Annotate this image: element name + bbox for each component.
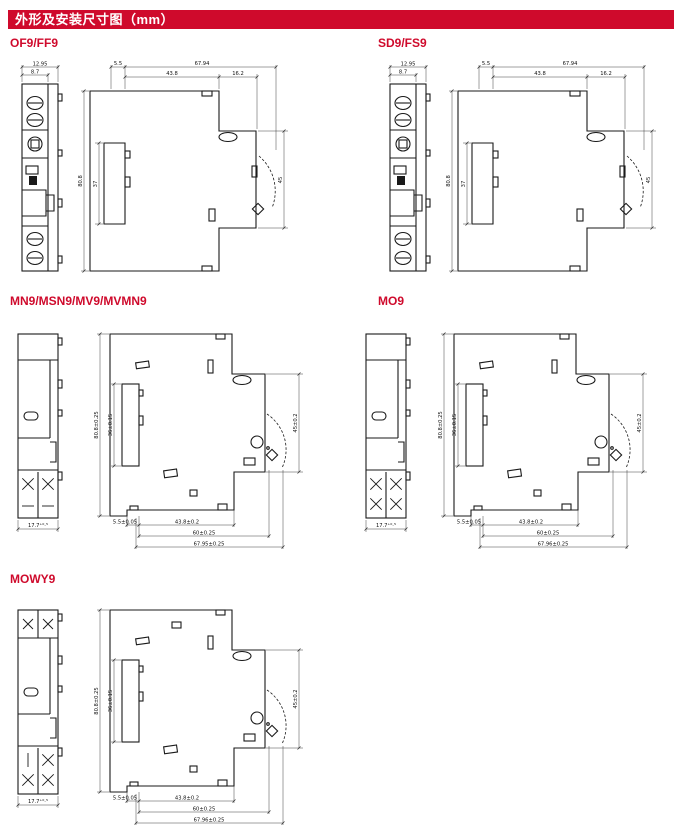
- mount-clip: [202, 266, 212, 271]
- dim-offset: 5.5±0.05: [457, 520, 481, 526]
- mo9-side-dimension-lines: [441, 333, 647, 550]
- sd9-front-dimension-lines: [389, 65, 428, 82]
- section-label-of9: OF9/FF9: [10, 36, 58, 50]
- dim-main: 43.8: [166, 71, 178, 77]
- dim-lever: 45: [278, 177, 284, 184]
- dim-lever: 45±0.2: [293, 413, 299, 432]
- of9-side-profile: [90, 91, 275, 271]
- sd9-side-profile: [458, 91, 643, 271]
- mount-clip: [560, 334, 569, 339]
- rail-block: [466, 384, 483, 466]
- indicator-slot: [24, 688, 38, 696]
- dim-step: 16.2: [232, 71, 244, 77]
- dim-offset: 5.5±0.05: [113, 520, 137, 526]
- terminal-screw-icon: [28, 137, 42, 151]
- sd9-front-body: [390, 84, 430, 271]
- section-label-mowy9: MOWY9: [10, 572, 55, 586]
- lever-travel-arc: [627, 156, 643, 208]
- din-clip-hole: [233, 652, 251, 661]
- dim-step: 16.2: [600, 71, 612, 77]
- dim-width: 17.7⁺⁰·⁵: [28, 799, 48, 805]
- dim-height-inner: 37: [461, 181, 467, 188]
- latch-slot: [244, 734, 255, 741]
- dim-main: 43.8: [534, 71, 546, 77]
- rail-block: [122, 660, 139, 742]
- dim-width: 17.7⁺⁰·⁵: [28, 523, 48, 529]
- sd9-side-view-drawing: 5.5 67.94 43.8 16.2 80.8 37 45: [444, 58, 672, 290]
- dim-height: 80.8±0.25: [94, 411, 100, 438]
- mowy9-side-dimension-lines: [97, 609, 303, 826]
- section-label-mo9: MO9: [378, 294, 404, 308]
- of9-front-view-drawing: 12.95 8.7: [8, 58, 72, 290]
- dim-total: 67.94: [563, 61, 579, 67]
- lever-screw-icon: [620, 203, 631, 214]
- indicator-slot: [24, 412, 38, 420]
- dim-offset: 5.5±0.05: [113, 796, 137, 802]
- of9-front-dimension-lines: [21, 65, 60, 82]
- terminal-screw-icon: [396, 137, 410, 151]
- dim-main: 43.8±0.2: [519, 520, 543, 526]
- mount-clip: [218, 780, 227, 786]
- mn9-side-view-drawing: 80.8±0.25 36±0.15 45±0.2 5.5±0.05 43.8±0…: [92, 320, 332, 552]
- dim-lever: 45: [646, 177, 652, 184]
- mowy9-side-profile: [110, 610, 286, 792]
- dim-width-inner: 8.7: [31, 70, 39, 76]
- rail-block: [104, 143, 125, 224]
- latch-slot: [588, 458, 599, 465]
- mn9-front-view-drawing: 17.7⁺⁰·⁵: [6, 322, 72, 537]
- dim-main: 43.8±0.2: [175, 796, 199, 802]
- mo9-front-view-drawing: 17.7⁺⁰·⁵: [354, 322, 420, 537]
- mo9-side-view-drawing: 80.8±0.25 36±0.15 45±0.2 5.5±0.05 43.8±0…: [436, 320, 676, 552]
- mount-clip: [216, 334, 225, 339]
- dim-total: 67.96±0.25: [538, 542, 569, 548]
- dim-height-inner: 36±0.15: [108, 690, 114, 713]
- dim-height-inner: 36±0.15: [452, 414, 458, 437]
- lever-pivot: [595, 436, 607, 448]
- din-clip-hole: [233, 376, 251, 385]
- mo9-side-profile: [454, 334, 630, 516]
- dim-offset: 5.5: [482, 61, 490, 67]
- din-clip-hole: [219, 133, 237, 142]
- page-header: 外形及安装尺寸图（mm）: [8, 10, 674, 29]
- dim-step: 60±0.25: [193, 531, 216, 537]
- mn9-side-profile: [110, 334, 286, 516]
- dim-offset: 5.5: [114, 61, 122, 67]
- mowy9-side-view-drawing: 80.8±0.25 36±0.15 45±0.2 5.5±0.05 43.8±0…: [92, 596, 332, 828]
- dim-height: 80.8: [78, 175, 84, 187]
- toggle-tab: [397, 176, 405, 185]
- toggle-tab: [29, 176, 37, 185]
- dim-height-inner: 36±0.15: [108, 414, 114, 437]
- dim-step: 60±0.25: [537, 531, 560, 537]
- din-clip-hole: [587, 133, 605, 142]
- mount-clip: [202, 91, 212, 96]
- lever-travel-arc: [259, 156, 275, 208]
- dim-lever: 45±0.2: [637, 413, 643, 432]
- dim-width: 12.95: [33, 62, 48, 68]
- lever-screw-icon: [610, 449, 621, 460]
- mount-clip: [570, 266, 580, 271]
- lever-travel-arc: [611, 414, 630, 468]
- lever-pivot: [251, 436, 263, 448]
- dim-width-inner: 8.7: [399, 70, 407, 76]
- mount-clip: [218, 504, 227, 510]
- dim-height: 80.8±0.25: [94, 687, 100, 714]
- dim-total: 67.94: [195, 61, 211, 67]
- mowy9-front-body: [18, 610, 62, 794]
- of9-front-body: [22, 84, 62, 271]
- lever-screw-icon: [266, 449, 277, 460]
- dim-lever: 45±0.2: [293, 689, 299, 708]
- mn9-side-dimension-lines: [97, 333, 303, 550]
- rail-block: [122, 384, 139, 466]
- dim-main: 43.8±0.2: [175, 520, 199, 526]
- mo9-front-body: [366, 334, 410, 518]
- lever-pivot: [251, 712, 263, 724]
- lever-travel-arc: [267, 414, 286, 468]
- mount-clip: [216, 610, 225, 615]
- page-title: 外形及安装尺寸图（mm）: [15, 12, 174, 27]
- dim-height: 80.8: [446, 175, 452, 187]
- latch-slot: [244, 458, 255, 465]
- lever-screw-icon: [266, 725, 277, 736]
- mount-clip: [562, 504, 571, 510]
- dim-step: 60±0.25: [193, 807, 216, 813]
- dim-height: 80.8±0.25: [438, 411, 444, 438]
- lever-screw-icon: [252, 203, 263, 214]
- sd9-front-view-drawing: 12.95 8.7: [376, 58, 440, 290]
- section-label-mn9: MN9/MSN9/MV9/MVMN9: [10, 294, 147, 308]
- dim-width: 17.7⁺⁰·⁵: [376, 523, 396, 529]
- section-label-sd9: SD9/FS9: [378, 36, 427, 50]
- dim-height-inner: 37: [93, 181, 99, 188]
- indicator-slot: [372, 412, 386, 420]
- dim-total: 67.96±0.25: [194, 818, 225, 824]
- of9-side-view-drawing: 5.5 67.94 43.8 16.2 80.8 37 45: [76, 58, 304, 290]
- mn9-front-body: [18, 334, 62, 518]
- lever-travel-arc: [267, 690, 286, 744]
- mount-clip: [570, 91, 580, 96]
- rail-block: [472, 143, 493, 224]
- dim-width: 12.95: [401, 62, 416, 68]
- dim-total: 67.95±0.25: [194, 542, 225, 548]
- mowy9-front-view-drawing: 17.7⁺⁰·⁵: [6, 598, 72, 813]
- din-clip-hole: [577, 376, 595, 385]
